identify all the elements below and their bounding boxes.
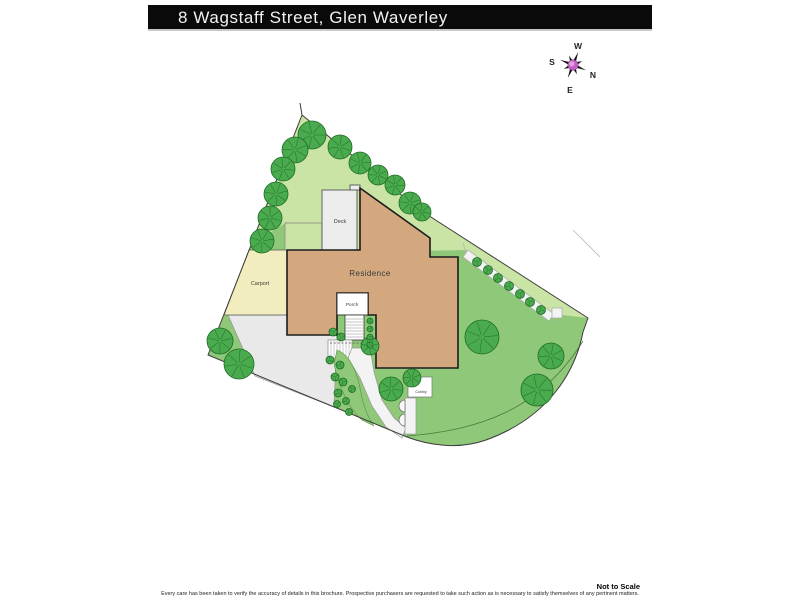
tree-icon	[349, 152, 371, 174]
cubby-label: Cubby	[415, 389, 427, 394]
compass-east-label: E	[567, 85, 573, 95]
hedge-end-box	[552, 308, 562, 318]
bush-icon	[349, 386, 356, 393]
tree-icon	[379, 377, 403, 401]
tree-icon	[368, 165, 388, 185]
compass-center-highlight	[569, 61, 574, 66]
not-to-scale-note: Not to Scale	[148, 582, 640, 591]
tree-icon	[538, 343, 564, 369]
bush-icon	[334, 389, 342, 397]
bush-icon	[367, 342, 373, 348]
tree-icon	[207, 328, 233, 354]
compass-west-label: W	[574, 41, 583, 51]
tree-icon	[328, 135, 352, 159]
site-plan: Residence Deck Carport Porch Cubby	[200, 100, 600, 460]
hedge-bush-icon	[494, 274, 503, 283]
neighbour-boundary-line	[573, 230, 600, 257]
tree-icon	[250, 229, 274, 253]
hedge-bush-icon	[537, 306, 546, 315]
tree-icon	[521, 374, 553, 406]
bush-icon	[339, 378, 347, 386]
bush-icon	[326, 356, 334, 364]
porch-label: Porch	[346, 302, 359, 308]
bush-icon	[329, 328, 337, 336]
bush-icon	[334, 401, 341, 408]
tree-icon	[258, 206, 282, 230]
compass-north-label: N	[590, 70, 596, 80]
hedge-bush-icon	[516, 290, 525, 299]
tree-icon	[224, 349, 254, 379]
bush-icon	[367, 334, 373, 340]
tree-icon	[465, 320, 499, 354]
tree-icon	[385, 175, 405, 195]
hedge-bush-icon	[526, 298, 535, 307]
bush-icon	[346, 409, 353, 416]
tree-icon	[403, 369, 421, 387]
carport-label: Carport	[251, 281, 270, 287]
deck-step	[350, 185, 360, 190]
bush-icon	[331, 373, 339, 381]
compass-rose-icon: W S N E	[542, 36, 608, 96]
hedge-bush-icon	[473, 258, 482, 267]
brochure-page: 8 Wagstaff Street, Glen Waverley W S N E	[0, 0, 800, 600]
bush-icon	[337, 333, 345, 341]
disclaimer-text: Every care has been taken to verify the …	[148, 591, 652, 597]
hedge-bush-icon	[505, 282, 514, 291]
tree-icon	[413, 203, 431, 221]
page-title: 8 Wagstaff Street, Glen Waverley	[148, 5, 652, 30]
hedge-bush-icon	[484, 266, 493, 275]
title-bar: 8 Wagstaff Street, Glen Waverley	[148, 5, 652, 31]
bush-icon	[367, 326, 373, 332]
tree-icon	[271, 157, 295, 181]
bush-icon	[343, 398, 350, 405]
side-path	[405, 398, 416, 434]
bush-icon	[367, 318, 373, 324]
tree-icon	[264, 182, 288, 206]
patio-bed	[285, 223, 322, 250]
deck-label: Deck	[334, 219, 347, 225]
residence-label: Residence	[349, 269, 391, 278]
compass-south-label: S	[549, 57, 555, 67]
bush-icon	[336, 361, 344, 369]
